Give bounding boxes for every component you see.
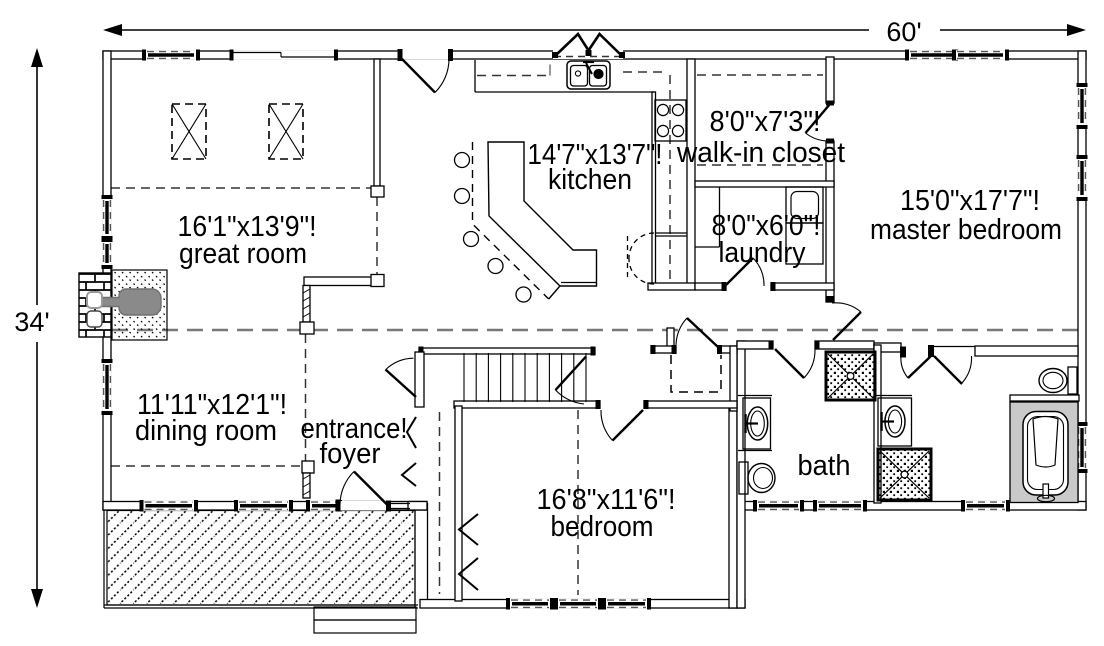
svg-text:kitchen: kitchen: [548, 164, 632, 196]
svg-text:foyer: foyer: [320, 438, 381, 470]
svg-text:34': 34': [14, 307, 49, 337]
svg-text:15'0"x17'7"!: 15'0"x17'7"!: [900, 185, 1040, 217]
svg-text:bath: bath: [798, 450, 851, 482]
svg-text:laundry: laundry: [719, 237, 806, 269]
svg-text:walk-in closet: walk-in closet: [676, 137, 845, 169]
svg-text:master bedroom: master bedroom: [870, 214, 1062, 246]
svg-text:8'0"x7'3"!: 8'0"x7'3"!: [710, 106, 821, 138]
svg-text:60': 60': [886, 17, 921, 47]
svg-text:bedroom: bedroom: [551, 511, 654, 543]
svg-text:dining room: dining room: [135, 415, 277, 447]
svg-text:great room: great room: [179, 238, 307, 270]
